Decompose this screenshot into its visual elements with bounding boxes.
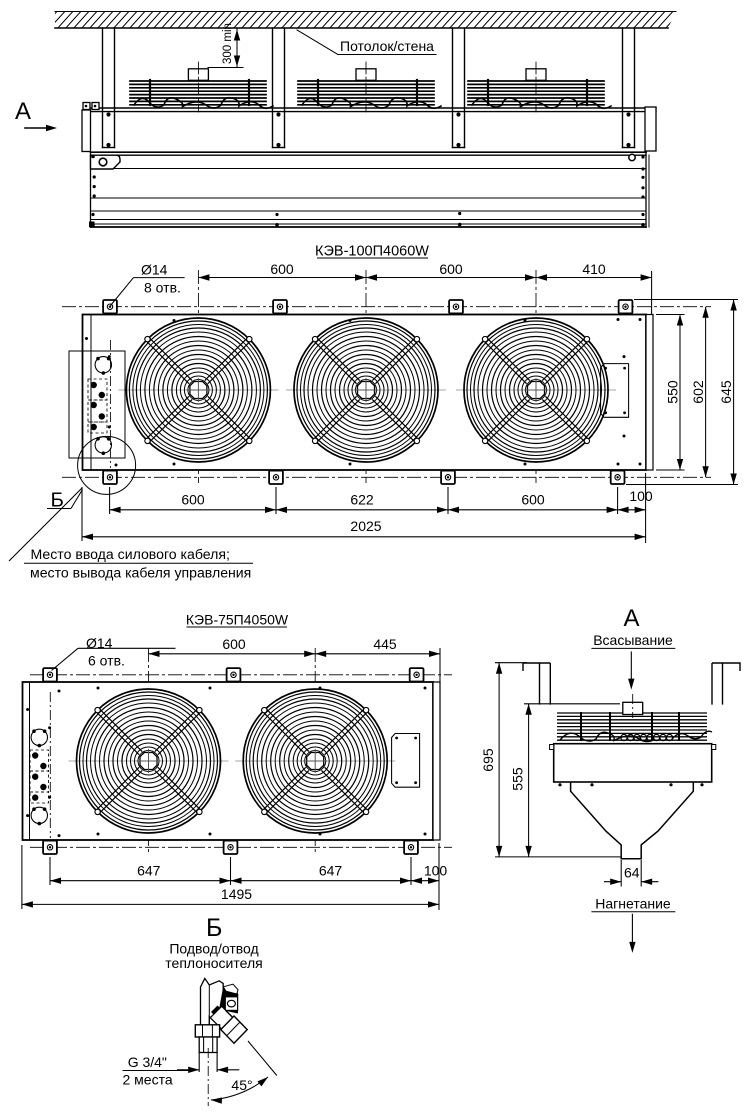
svg-text:64: 64: [624, 865, 640, 881]
svg-text:45°: 45°: [231, 1077, 252, 1093]
svg-text:Потолок/стена: Потолок/стена: [340, 38, 434, 54]
svg-text:600: 600: [222, 636, 246, 652]
svg-text:2025: 2025: [350, 518, 381, 534]
svg-text:Б: Б: [206, 914, 222, 942]
svg-text:600: 600: [521, 492, 545, 508]
svg-text:КЭВ-75П4050W: КЭВ-75П4050W: [186, 612, 289, 628]
svg-text:Место ввода силового кабеля;: Место ввода силового кабеля;: [31, 546, 230, 562]
svg-text:647: 647: [319, 863, 343, 879]
svg-text:А: А: [623, 605, 639, 632]
svg-text:100: 100: [424, 863, 448, 879]
svg-text:8 отв.: 8 отв.: [144, 280, 181, 296]
svg-text:КЭВ-100П4060W: КЭВ-100П4060W: [315, 244, 429, 260]
svg-text:600: 600: [439, 261, 463, 277]
svg-text:647: 647: [137, 863, 161, 879]
svg-text:622: 622: [350, 492, 374, 508]
svg-text:550: 550: [665, 380, 681, 404]
svg-text:555: 555: [510, 767, 526, 791]
svg-text:Ø14: Ø14: [141, 262, 168, 278]
svg-text:695: 695: [480, 748, 496, 772]
svg-text:1495: 1495: [221, 886, 252, 902]
svg-text:600: 600: [181, 492, 205, 508]
svg-text:теплоносителя: теплоносителя: [165, 955, 262, 971]
svg-text:Всасывание: Всасывание: [593, 632, 673, 648]
svg-text:2 места: 2 места: [123, 1072, 173, 1088]
svg-text:445: 445: [373, 636, 397, 652]
svg-text:602: 602: [690, 380, 706, 404]
svg-text:645: 645: [718, 380, 734, 404]
svg-text:Нагнетание: Нагнетание: [595, 896, 671, 912]
svg-text:300 min: 300 min: [222, 23, 234, 64]
svg-text:100: 100: [629, 488, 653, 504]
svg-text:G 3/4": G 3/4": [128, 1054, 167, 1070]
svg-text:место вывода кабеля управления: место вывода кабеля управления: [30, 565, 251, 581]
svg-text:А: А: [15, 98, 31, 125]
svg-text:410: 410: [582, 261, 606, 277]
svg-text:600: 600: [270, 261, 294, 277]
svg-text:6 отв.: 6 отв.: [88, 653, 125, 669]
